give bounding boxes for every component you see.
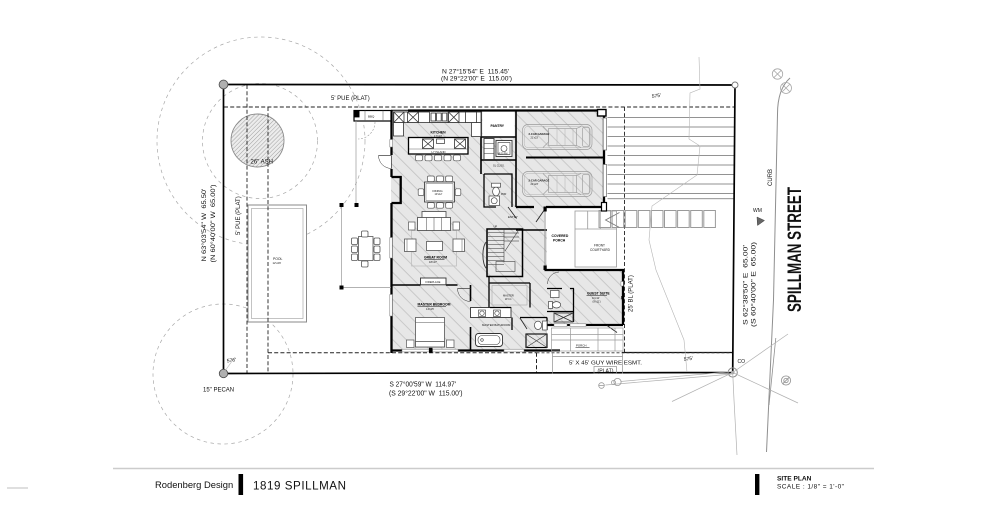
svg-text:10'x12': 10'x12' [435, 193, 443, 196]
svg-text:MUD RM: MUD RM [498, 153, 508, 156]
svg-text:BBQ: BBQ [368, 115, 375, 119]
svg-text:SCALE : 1/8" = 1'-0": SCALE : 1/8" = 1'-0" [777, 484, 845, 491]
svg-text:575': 575' [683, 356, 693, 363]
svg-text:2-CAR GARAGE: 2-CAR GARAGE [529, 132, 550, 136]
svg-text:MASTER BATHROOM: MASTER BATHROOM [482, 323, 511, 327]
svg-text:PORCH: PORCH [553, 239, 566, 243]
svg-text:WM: WM [753, 208, 762, 214]
svg-text:5' X 45' GUY WIRE ESMT.: 5' X 45' GUY WIRE ESMT. [569, 361, 642, 367]
svg-text:(PLAT): (PLAT) [598, 369, 614, 375]
svg-text:(N 29°22'00" E 115.00'): (N 29°22'00" E 115.00') [441, 74, 512, 82]
svg-text:576': 576' [226, 357, 236, 364]
svg-text:26" ASH: 26" ASH [251, 160, 273, 166]
svg-text:(N 60°40'00" W 65.00'): (N 60°40'00" W 65.00') [209, 185, 217, 263]
svg-text:GREAT ROOM: GREAT ROOM [424, 256, 447, 260]
svg-text:SITE PLAN: SITE PLAN [777, 476, 812, 483]
svg-text:575': 575' [651, 93, 661, 100]
svg-text:(S 60°40'00" E 65.00): (S 60°40'00" E 65.00) [751, 242, 758, 327]
svg-text:18'x17': 18'x17' [429, 260, 438, 264]
svg-text:11'x11': 11'x11' [592, 296, 600, 300]
svg-text:COVERED: COVERED [552, 234, 569, 238]
svg-text:2-CAR GARAGE: 2-CAR GARAGE [529, 179, 550, 183]
svg-text:(S 29°22'00" W 115.00'): (S 29°22'00" W 115.00') [389, 388, 463, 397]
svg-text:21'x23': 21'x23' [531, 137, 539, 140]
svg-text:W.I.C.: W.I.C. [505, 297, 512, 301]
svg-text:SL CLOS.: SL CLOS. [493, 164, 505, 168]
svg-text:DINING: DINING [433, 189, 444, 193]
svg-text:(9'x11'): (9'x11') [593, 299, 601, 303]
svg-text:1819 SPILLMAN: 1819 SPILLMAN [253, 480, 347, 493]
svg-text:S 27°00'59" W 114.97': S 27°00'59" W 114.97' [390, 380, 457, 389]
svg-text:25' BL (PLAT): 25' BL (PLAT) [629, 275, 635, 312]
svg-text:CO: CO [738, 359, 746, 365]
svg-text:21'x23': 21'x23' [531, 183, 539, 186]
svg-text:GUEST SUITE: GUEST SUITE [587, 292, 610, 296]
svg-text:S 62°38'50" E 65.00': S 62°38'50" E 65.00' [743, 245, 750, 325]
svg-text:COURTYARD: COURTYARD [590, 248, 611, 252]
svg-text:N 63°03'54" W 65.50': N 63°03'54" W 65.50' [200, 189, 208, 262]
svg-text:15" PECAN: 15" PECAN [203, 388, 234, 394]
svg-text:MASTER BEDROOM: MASTER BEDROOM [418, 303, 451, 307]
svg-text:FRONT: FRONT [594, 244, 605, 248]
svg-text:L7 ISLAND: L7 ISLAND [432, 150, 446, 154]
svg-text:PDR: PDR [501, 193, 506, 196]
svg-text:12'x26': 12'x26' [273, 261, 282, 265]
svg-text:UP: UP [494, 225, 498, 229]
svg-text:SPILLMAN STREET: SPILLMAN STREET [785, 187, 806, 312]
svg-text:MASTER: MASTER [503, 294, 514, 298]
svg-text:5' PUE (PLAT): 5' PUE (PLAT) [236, 196, 242, 235]
svg-text:5' PUE (PLAT): 5' PUE (PLAT) [331, 96, 370, 102]
svg-text:KITCHEN: KITCHEN [431, 131, 447, 135]
svg-text:CURB: CURB [768, 169, 774, 186]
svg-text:PORCH: PORCH [576, 344, 586, 348]
svg-text:14'x15': 14'x15' [426, 307, 435, 311]
svg-text:FIREPLACE: FIREPLACE [426, 280, 441, 284]
svg-text:PANTRY: PANTRY [491, 124, 505, 128]
svg-text:Rodenberg Design: Rodenberg Design [155, 479, 233, 490]
